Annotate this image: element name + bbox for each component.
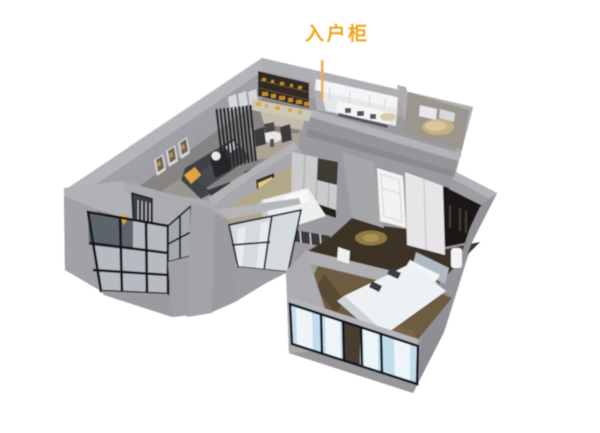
svg-text:入户柜: 入户柜 xyxy=(305,22,370,45)
